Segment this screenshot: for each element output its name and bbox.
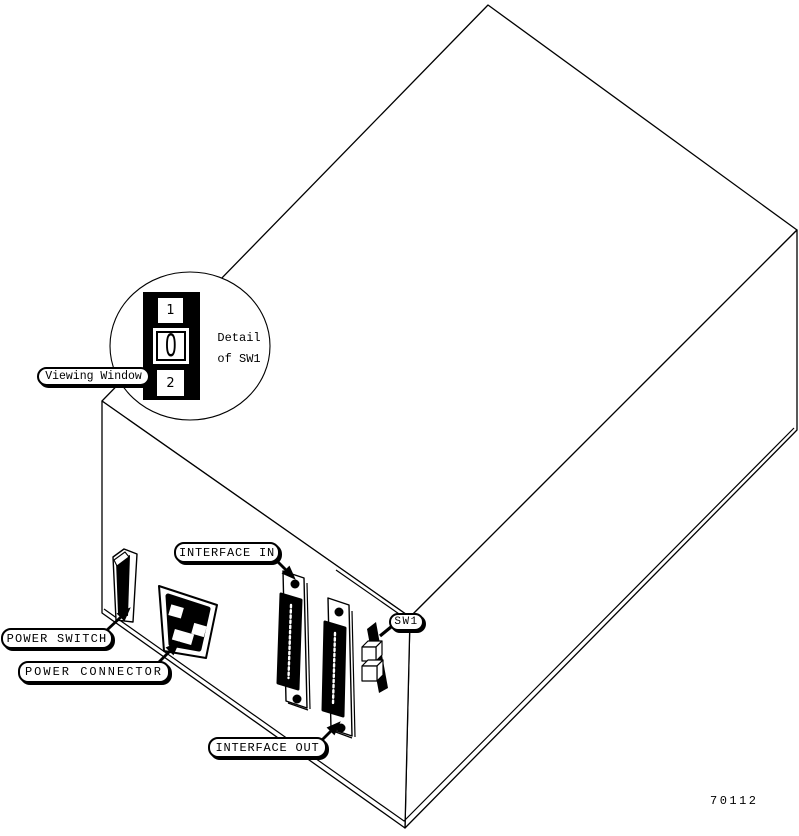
switch-viewing-window: 0 bbox=[153, 328, 189, 364]
figure-number-text: 70112 bbox=[710, 794, 759, 808]
interface-out-label: INTERFACE OUT bbox=[208, 737, 327, 758]
power-switch-label-text: POWER SWITCH bbox=[7, 633, 108, 645]
interface-in-screw-top bbox=[291, 580, 300, 589]
detail-note-line1: Detail bbox=[206, 328, 272, 349]
switch-position-1-label: 1 bbox=[166, 303, 174, 318]
figure-number: 70112 bbox=[710, 794, 770, 808]
sw1-label: SW1 bbox=[389, 613, 424, 631]
power-connector-label: POWER CONNECTOR bbox=[18, 661, 170, 683]
switch-viewing-window-frame: 0 bbox=[156, 331, 186, 361]
device-rear-isometric-drawing bbox=[0, 0, 799, 836]
viewing-window-label: Viewing Window bbox=[37, 367, 150, 386]
interface-in-label-text: INTERFACE IN bbox=[179, 547, 275, 559]
switch-position-1: 1 bbox=[158, 298, 183, 323]
detail-of-sw1-note: Detail of SW1 bbox=[206, 328, 272, 370]
detail-note-line2: of SW1 bbox=[206, 349, 272, 370]
interface-out-screw-top bbox=[335, 608, 344, 617]
figure-canvas: 1 0 2 Detail of SW1 Viewing Window INTER… bbox=[0, 0, 799, 836]
sw1-label-text: SW1 bbox=[394, 617, 418, 628]
power-switch-label: POWER SWITCH bbox=[1, 628, 113, 649]
switch-position-0-label: 0 bbox=[165, 333, 177, 359]
interface-out-label-text: INTERFACE OUT bbox=[215, 742, 319, 754]
switch-position-2-label: 2 bbox=[166, 376, 174, 391]
power-connector-label-text: POWER CONNECTOR bbox=[25, 666, 163, 678]
viewing-window-label-text: Viewing Window bbox=[45, 371, 142, 383]
interface-in-label: INTERFACE IN bbox=[174, 542, 280, 563]
switch-position-2: 2 bbox=[157, 370, 184, 396]
interface-in-screw-bottom bbox=[293, 695, 302, 704]
